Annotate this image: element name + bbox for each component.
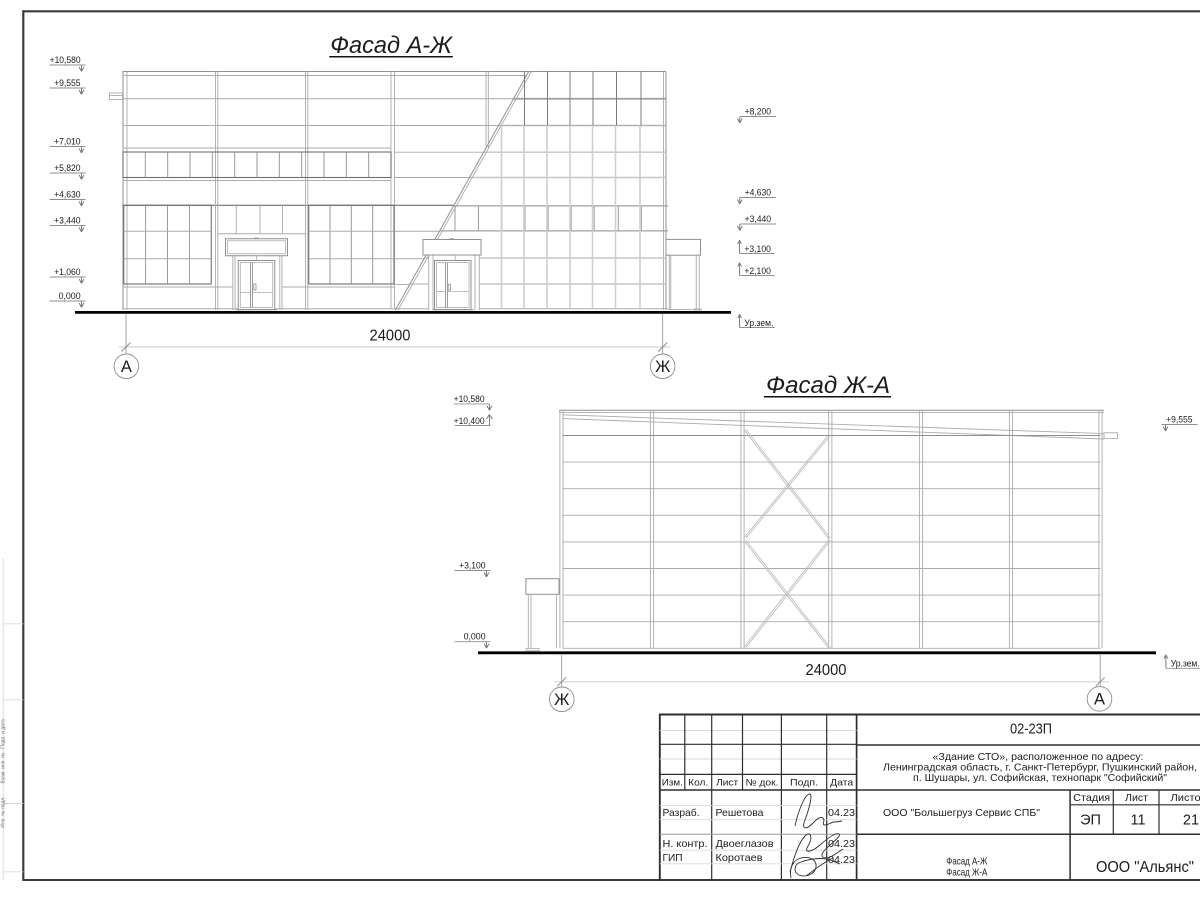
svg-text:+4,630: +4,630 bbox=[54, 190, 81, 201]
svg-text:24000: 24000 bbox=[370, 327, 411, 344]
svg-text:02-23П: 02-23П bbox=[1010, 722, 1052, 738]
svg-text:Взам. инв. №: Взам. инв. № bbox=[1, 753, 7, 784]
svg-text:А: А bbox=[121, 358, 132, 376]
svg-text:Двоеглазов: Двоеглазов bbox=[716, 839, 775, 850]
svg-text:Разраб.: Разраб. bbox=[663, 807, 700, 819]
svg-text:Фасад А-Ж: Фасад А-Ж bbox=[330, 32, 453, 59]
svg-text:+9,555: +9,555 bbox=[54, 78, 81, 89]
svg-text:Лист: Лист bbox=[1125, 793, 1148, 804]
svg-text:11: 11 bbox=[1130, 813, 1145, 829]
svg-text:04.23: 04.23 bbox=[828, 808, 855, 819]
svg-text:04.23: 04.23 bbox=[828, 839, 855, 850]
svg-text:Дата: Дата bbox=[830, 778, 854, 789]
svg-text:+3,100: +3,100 bbox=[459, 561, 486, 572]
svg-text:Ж: Ж bbox=[655, 358, 671, 376]
svg-text:«Здание СТО», расположенное по: «Здание СТО», расположенное по адресу: bbox=[933, 752, 1144, 763]
svg-text:Листов: Листов bbox=[1171, 793, 1200, 804]
svg-text:24000: 24000 bbox=[806, 662, 847, 679]
svg-text:+9,555: +9,555 bbox=[1166, 415, 1193, 426]
svg-text:Подп. и дата: Подп. и дата bbox=[1, 719, 7, 749]
svg-text:+3,100: +3,100 bbox=[744, 244, 771, 255]
svg-text:Подп.: Подп. bbox=[790, 778, 818, 789]
svg-text:Лист: Лист bbox=[716, 778, 739, 789]
svg-text:Ленинградская область, г. Санк: Ленинградская область, г. Санкт-Петербур… bbox=[883, 761, 1197, 773]
svg-text:ООО "Альянс": ООО "Альянс" bbox=[1096, 859, 1194, 876]
svg-text:Фасад А-Ж: Фасад А-Ж bbox=[946, 857, 987, 868]
svg-text:Фасад Ж-А: Фасад Ж-А bbox=[766, 372, 890, 399]
svg-text:0,000: 0,000 bbox=[464, 632, 486, 643]
svg-text:ЭП: ЭП bbox=[1080, 813, 1101, 829]
svg-text:ГИП: ГИП bbox=[663, 853, 683, 864]
svg-text:Фасад Ж-А: Фасад Ж-А bbox=[946, 868, 987, 879]
svg-text:Ур.зем.: Ур.зем. bbox=[1171, 659, 1200, 670]
svg-text:0,000: 0,000 bbox=[59, 291, 81, 302]
svg-text:+2,100: +2,100 bbox=[744, 266, 771, 277]
svg-text:+8,200: +8,200 bbox=[745, 107, 772, 118]
svg-text:21: 21 bbox=[1183, 813, 1199, 829]
svg-text:Изм.: Изм. bbox=[662, 778, 683, 789]
svg-text:+10,580: +10,580 bbox=[454, 394, 485, 405]
svg-text:+10,400: +10,400 bbox=[454, 416, 485, 427]
svg-text:Н. контр.: Н. контр. bbox=[663, 839, 708, 850]
svg-text:+5,820: +5,820 bbox=[54, 163, 81, 174]
svg-text:№ док.: № док. bbox=[746, 778, 779, 789]
svg-text:ООО "Большегруз Сервис СПБ": ООО "Большегруз Сервис СПБ" bbox=[883, 808, 1040, 819]
svg-text:Стадия: Стадия bbox=[1073, 793, 1110, 804]
svg-text:+1,060: +1,060 bbox=[54, 267, 81, 278]
svg-text:Ур.зем.: Ур.зем. bbox=[744, 318, 773, 329]
svg-text:А: А bbox=[1094, 691, 1105, 709]
svg-text:+3,440: +3,440 bbox=[54, 216, 81, 227]
svg-text:п. Шушары, ул. Софийская, техн: п. Шушары, ул. Софийская, технопарк "Соф… bbox=[913, 772, 1167, 784]
svg-text:+7,010: +7,010 bbox=[54, 137, 81, 148]
svg-text:+4,630: +4,630 bbox=[745, 188, 772, 199]
svg-text:Ж: Ж bbox=[554, 691, 570, 709]
svg-text:Инв. № подл.: Инв. № подл. bbox=[1, 796, 7, 827]
svg-text:+10,580: +10,580 bbox=[50, 55, 81, 66]
svg-text:Кол.: Кол. bbox=[688, 778, 708, 789]
svg-text:Коротаев: Коротаев bbox=[716, 853, 764, 864]
svg-text:Решетова: Решетова bbox=[716, 808, 764, 819]
svg-text:+3,440: +3,440 bbox=[745, 214, 772, 225]
